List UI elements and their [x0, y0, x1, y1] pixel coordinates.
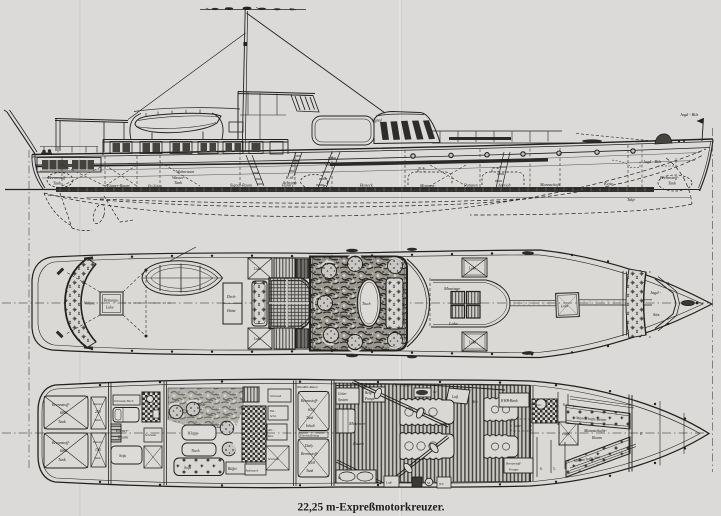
svg-text:Tank: Tank: [58, 457, 66, 462]
svg-text:Öl: Öl: [338, 475, 341, 480]
svg-text:Raum: Raum: [117, 435, 128, 440]
svg-text:22,25 m-Expreßmotorkreuzer.: 22,25 m-Expreßmotorkreuzer.: [298, 502, 445, 514]
svg-text:Schrank: Schrank: [268, 457, 279, 461]
svg-text:680: 680: [60, 448, 68, 453]
svg-text:Signal: Signal: [372, 119, 382, 123]
svg-text:Büffet: Büffet: [228, 467, 238, 471]
svg-text:680: 680: [60, 410, 68, 415]
svg-text:Luke: Luke: [253, 267, 261, 271]
svg-text:Kette: Kette: [603, 181, 613, 186]
svg-text:650: 650: [308, 460, 316, 465]
svg-text:Inhalt: Inhalt: [305, 424, 316, 428]
svg-text:Brennstoff-: Brennstoff-: [52, 402, 71, 407]
svg-text:System: System: [338, 398, 348, 402]
svg-text:Volant: Volant: [84, 301, 96, 306]
svg-text:Pumpe: Pumpe: [508, 468, 519, 472]
svg-text:Schrank: Schrank: [270, 394, 282, 398]
svg-text:Tank: Tank: [668, 181, 676, 186]
svg-text:Sofa: Sofa: [184, 465, 191, 470]
svg-text:Motoren-: Motoren-: [348, 421, 367, 426]
svg-text:650: 650: [308, 407, 316, 412]
svg-text:Jagd - Bilz: Jagd - Bilz: [680, 112, 699, 117]
svg-text:Pumpe: Pumpe: [400, 480, 411, 484]
svg-text:Schrank: Schrank: [283, 180, 297, 185]
svg-text:Tank: Tank: [53, 181, 61, 186]
svg-text:Tank: Tank: [94, 456, 101, 460]
svg-text:Talje: Talje: [627, 197, 635, 202]
svg-text:Montage: Montage: [443, 286, 460, 291]
svg-text:Signal-Raum: Signal-Raum: [230, 183, 252, 188]
svg-text:Eis-: Eis-: [269, 409, 275, 413]
svg-text:Tank: Tank: [306, 469, 314, 473]
svg-text:250: 250: [95, 410, 101, 414]
svg-text:Luft: Luft: [385, 481, 393, 485]
svg-text:Raum: Raum: [591, 435, 602, 440]
svg-text:Grün-: Grün-: [338, 392, 348, 396]
svg-text:Schrank-Tisch: Schrank-Tisch: [114, 399, 134, 403]
svg-text:6: 6: [649, 270, 651, 274]
svg-text:150: 150: [95, 448, 101, 452]
svg-text:Kur.: Kur.: [267, 434, 274, 438]
svg-text:6.: 6.: [540, 467, 543, 471]
svg-text:Brennstoff-: Brennstoff-: [52, 440, 71, 445]
svg-text:6: 6: [563, 403, 565, 407]
svg-text:Handöls-Raum: Handöls-Raum: [296, 385, 318, 389]
svg-text:Tank: Tank: [174, 180, 182, 185]
svg-text:Lüftg: Lüftg: [561, 432, 570, 436]
svg-text:Brennstoff-: Brennstoff-: [660, 175, 679, 180]
svg-text:M: M: [427, 481, 430, 485]
svg-text:Luke: Luke: [448, 321, 458, 326]
svg-text:Rettungs-: Rettungs-: [103, 299, 120, 303]
svg-text:Eigner-: Eigner-: [115, 428, 129, 433]
svg-text:Tisch: Tisch: [362, 301, 370, 306]
svg-text:Brennstoff: Brennstoff: [506, 462, 521, 466]
svg-text:Luke: Luke: [468, 267, 476, 271]
svg-text:Wasser: Wasser: [93, 402, 104, 406]
svg-text:Antrieb: Antrieb: [497, 182, 511, 187]
svg-text:Luke: Luke: [105, 306, 114, 310]
svg-text:Besteck: Besteck: [360, 183, 373, 188]
svg-text:Jagd - Bilz: Jagd - Bilz: [643, 159, 662, 164]
svg-text:Öl: Öl: [433, 389, 436, 394]
svg-text:Motoren-: Motoren-: [419, 183, 436, 188]
svg-text:Pumpen: Pumpen: [463, 183, 478, 188]
svg-text:Tank: Tank: [58, 419, 66, 424]
svg-text:Deck-: Deck-: [226, 295, 237, 299]
svg-text:Wohndeck: Wohndeck: [334, 313, 354, 318]
svg-text:Sofa: Sofa: [119, 453, 126, 458]
svg-text:Tank: Tank: [306, 416, 314, 420]
svg-text:WC: WC: [439, 482, 445, 486]
svg-text:Daily: Daily: [304, 444, 313, 448]
svg-text:Peilöfen: Peilöfen: [147, 184, 162, 189]
svg-text:Luke: Luke: [560, 304, 569, 308]
svg-text:Schrank: Schrank: [145, 433, 156, 437]
svg-text:Aufwasch: Aufwasch: [245, 469, 259, 473]
svg-text:KWB-Bank: KWB-Bank: [500, 399, 518, 403]
svg-text:Bilz: Bilz: [472, 400, 478, 404]
svg-text:Brennstoff-: Brennstoff-: [301, 452, 319, 456]
svg-text:Brennstoff-: Brennstoff-: [301, 399, 319, 403]
svg-text:Eigner -: Eigner -: [329, 287, 346, 292]
svg-text:5.: 5.: [553, 467, 556, 471]
svg-text:W.C: W.C: [536, 403, 542, 407]
svg-text:Wasser: Wasser: [93, 440, 104, 444]
svg-text:Brennstoff-: Brennstoff-: [48, 175, 67, 180]
svg-text:Mannschafts-: Mannschafts-: [583, 428, 607, 433]
svg-text:Tank: Tank: [94, 418, 101, 422]
svg-text:Mannschaft: Mannschaft: [539, 182, 561, 187]
svg-text:6: 6: [649, 335, 651, 339]
svg-text:Sitz.: Sitz.: [653, 312, 660, 317]
svg-text:Air -: Air -: [267, 428, 274, 432]
svg-text:Klapp-: Klapp-: [187, 431, 200, 436]
svg-text:Jagd -: Jagd -: [650, 290, 662, 295]
svg-text:E.: E.: [639, 432, 643, 436]
svg-text:Luke: Luke: [468, 341, 476, 345]
svg-text:Überlaufleitung: Überlaufleitung: [300, 433, 320, 438]
svg-text:Luke: Luke: [513, 424, 521, 428]
svg-text:Luke: Luke: [253, 337, 261, 341]
svg-text:Raum: Raum: [352, 441, 364, 446]
svg-text:Tisch: Tisch: [191, 448, 199, 453]
svg-text:Pumpe: Pumpe: [364, 397, 375, 401]
svg-text:Luft: Luft: [451, 395, 459, 399]
svg-text:Schr.: Schr.: [270, 414, 277, 418]
svg-text:Wohnraum: Wohnraum: [176, 169, 194, 174]
svg-text:Eigner-Raum: Eigner-Raum: [106, 183, 129, 188]
svg-text:Hütte: Hütte: [226, 309, 236, 313]
